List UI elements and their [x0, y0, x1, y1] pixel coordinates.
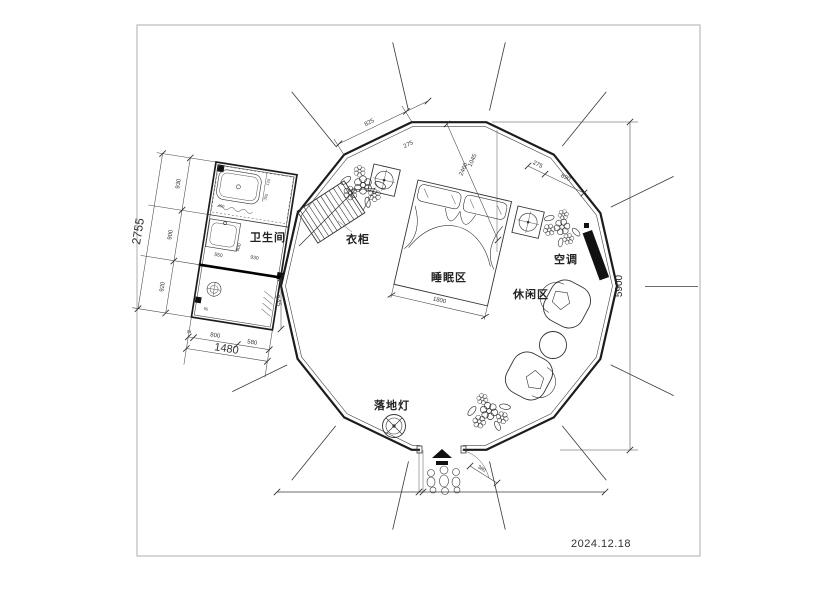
date-stamp: 2024.12.18 [571, 538, 631, 550]
wall-post [584, 223, 589, 228]
label-leisure-area: 休闲区 [512, 287, 549, 301]
label-bathroom: 卫生间 [250, 230, 286, 244]
floor-lamp-symbol [383, 415, 406, 438]
label-sleeping-area: 睡眠区 [431, 270, 467, 284]
dim-total-height: 5900 [614, 274, 625, 297]
floor-plan-svg: 1800 [0, 0, 837, 592]
label-wardrobe: 衣柜 [346, 232, 370, 246]
floor-plan-page: 1800 [0, 0, 837, 592]
label-floor-lamp: 落地灯 [374, 398, 410, 412]
label-air-conditioner: 空调 [554, 252, 578, 266]
